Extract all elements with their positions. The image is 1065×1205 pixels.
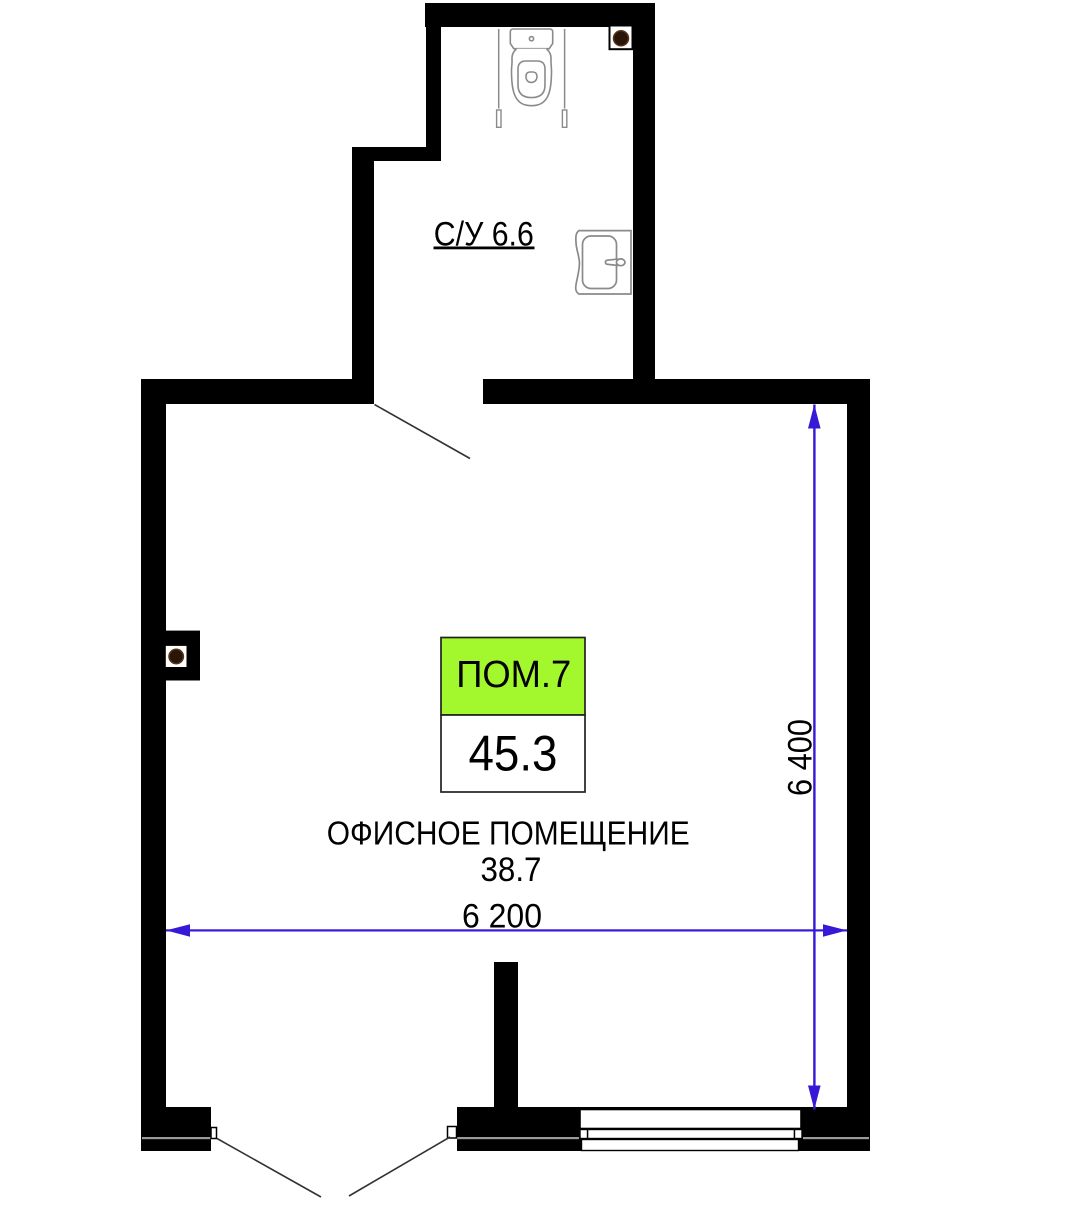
svg-text:38.7: 38.7 bbox=[481, 851, 542, 889]
svg-text:ПОМ.7: ПОМ.7 bbox=[456, 654, 571, 696]
svg-text:45.3: 45.3 bbox=[469, 726, 558, 782]
svg-text:ОФИСНОЕ ПОМЕЩЕНИЕ: ОФИСНОЕ ПОМЕЩЕНИЕ bbox=[327, 815, 690, 852]
